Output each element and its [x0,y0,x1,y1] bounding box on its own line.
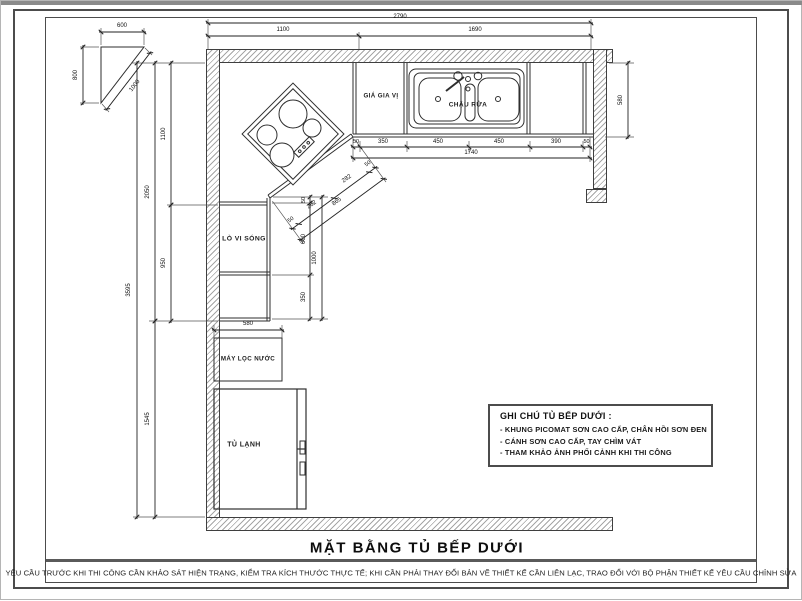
burner [257,125,277,145]
dim-label: 2050 [145,185,151,198]
dim-label: 50 [353,139,359,145]
notes-item: - THAM KHẢO ẢNH PHỐI CẢNH KHI THI CÔNG [500,447,701,459]
dim-label: 390 [551,139,561,145]
dim-label: 1740 [464,150,477,156]
faucet [466,77,471,82]
title-separator [46,559,756,562]
dim-label: 450 [494,139,504,145]
burner [279,100,307,128]
plan-canvas: GIÁ GIA VỊ CHẬU RỬA LÒ VI SÓNG MÁY LỌC N… [1,1,802,601]
label-sink: CHẬU RỬA [449,102,488,109]
notes-title: GHI CHÚ TỦ BẾP DƯỚI : [500,411,701,421]
dim-label: 1100 [161,128,167,141]
dim-label: 580 [618,95,624,105]
dim-label: 1545 [145,412,151,425]
fridge-handle [300,462,305,475]
notes-item: - CÁNH SƠN CAO CẤP, TAY CHÌM VÁT [500,436,701,448]
dim-label: 580 [243,321,253,327]
drawing-title: MẶT BẰNG TỦ BẾP DƯỚI [310,540,524,557]
dim-label: 1000 [312,251,318,264]
label-microwave: LÒ VI SÓNG [222,236,266,243]
dim-label: 450 [433,139,443,145]
top-counter [353,63,593,137]
notes-box: GHI CHÚ TỦ BẾP DƯỚI : - KHUNG PICOMAT SƠ… [488,404,713,467]
label-spice-rack: GIÁ GIA VỊ [363,93,398,100]
dim-label: 600 [301,234,307,244]
label-water-filter: MÁY LỌC NƯỚC [221,356,275,363]
burner [270,143,294,167]
dim-label: 50 [301,197,307,203]
dim-label: 600 [117,23,127,29]
footer-note: YÊU CẦU TRƯỚC KHI THI CÔNG CẦN KHẢO SÁT … [5,569,796,578]
fridge-handle [300,441,305,454]
dim-label: 950 [161,258,167,268]
dim-label: 350 [378,139,388,145]
corner-hob [242,83,344,185]
sink [409,69,524,128]
notes-item: - KHUNG PICOMAT SƠN CAO CẤP, CHÂN HỒI SƠ… [500,424,701,436]
burner [303,119,321,137]
dim-label: 800 [73,70,79,80]
dim-label: 3595 [126,283,132,296]
dim-label: 2790 [393,14,406,20]
label-fridge: TỦ LẠNH [227,442,261,449]
dim-label: 1690 [468,27,481,33]
sink-bowl-right [478,78,519,121]
fridge [214,389,306,509]
corner-triangle-detail [101,47,144,103]
dim-label: 350 [301,292,307,302]
dim-label: 1100 [277,27,290,33]
dim-label: 50 [583,139,589,145]
